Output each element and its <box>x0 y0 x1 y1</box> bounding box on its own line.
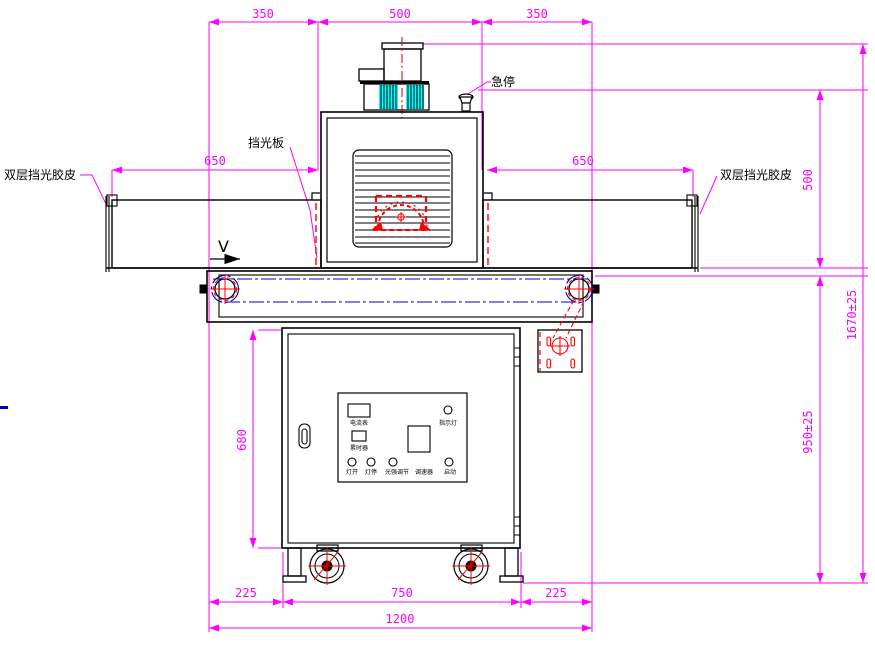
dim-bottom-center: 750 <box>391 586 413 600</box>
label-start: 启动 <box>444 468 456 476</box>
emergency-stop-button <box>459 94 473 111</box>
ammeter-display <box>348 404 370 417</box>
legs-and-casters <box>283 545 523 585</box>
label-lamp-on: 灯开 <box>346 468 358 476</box>
leveling-leg-right <box>505 548 518 576</box>
start-button <box>445 458 453 466</box>
leveling-leg-left <box>288 548 301 576</box>
oven-grille-louvers <box>355 156 450 243</box>
cabinet-door <box>288 334 514 543</box>
lamp-off-button <box>367 458 375 466</box>
oven-housing <box>321 112 483 268</box>
motor-side-box <box>359 69 384 81</box>
dim-bottom-right: 225 <box>545 586 567 600</box>
dim-bottom-left: 225 <box>235 586 257 600</box>
label-lamp-off: 灯停 <box>365 468 377 476</box>
tunnel-right <box>483 200 692 268</box>
tunnel-left <box>112 200 321 268</box>
motor-mount-bracket <box>538 300 584 372</box>
label-intensity-adjust: 光强调节 <box>385 468 409 476</box>
dim-total-height: 1670±25 <box>845 290 859 341</box>
indicator-lamp <box>444 406 452 414</box>
label-hour-meter: 累时器 <box>350 444 368 452</box>
label-light-shield-plate: 挡光板 <box>248 136 284 150</box>
caster-left <box>308 545 346 585</box>
dim-cabinet-height: 680 <box>235 429 249 451</box>
dim-top-right: 350 <box>526 7 548 21</box>
door-handle <box>299 424 310 448</box>
shield-bracket-left <box>312 193 320 200</box>
leveling-pad-right <box>500 576 523 582</box>
hour-meter-display <box>352 431 366 441</box>
dimension-lines <box>112 22 863 628</box>
label-belt-direction: V <box>218 237 229 256</box>
fan-motor-assembly <box>359 37 429 118</box>
shield-bracket-right <box>484 193 492 200</box>
roller-shaft-left <box>200 285 207 293</box>
dimension-extension-lines <box>112 22 868 632</box>
label-ammeter: 电流表 <box>350 419 368 427</box>
dim-tunnel-right: 650 <box>572 154 594 168</box>
label-emergency-stop: 急停 <box>491 74 515 89</box>
technical-drawing-canvas: 350 500 350 650 650 500 1670±25 950±25 6… <box>0 0 875 650</box>
leveling-pad-left <box>283 576 306 582</box>
dim-total-width: 1200 <box>386 612 415 626</box>
label-speed-controller: 调速器 <box>415 468 433 476</box>
dim-tunnel-left: 650 <box>204 154 226 168</box>
control-panel: 电流表 累时器 指示灯 灯开 灯停 光强调节 调速器 启动 <box>338 393 467 482</box>
label-double-rubber-right: 双层挡光胶皮 <box>720 167 792 182</box>
speed-controller-unit <box>408 426 430 452</box>
lamp-on-button <box>348 458 356 466</box>
door-hinges <box>514 348 520 535</box>
left-edge-blue-mark <box>0 406 8 409</box>
belt-centerlines-blue <box>212 276 593 303</box>
uv-lamp-reflector <box>371 196 431 230</box>
light-shield-plates-red <box>316 203 488 267</box>
intensity-adjust-knob <box>389 458 397 466</box>
control-cabinet <box>282 328 520 548</box>
uv-machine-drawing: 350 500 350 650 650 500 1670±25 950±25 6… <box>0 0 875 650</box>
fan-base-plate <box>360 81 429 84</box>
caster-right <box>452 545 490 585</box>
label-double-rubber-left: 双层挡光胶皮 <box>4 167 76 182</box>
dim-oven-height: 500 <box>801 169 815 191</box>
oven-grille-frame <box>353 150 452 247</box>
dim-belt-height: 950±25 <box>801 410 815 453</box>
label-indicator-lamp: 指示灯 <box>439 419 457 427</box>
dim-top-left: 350 <box>252 7 274 21</box>
dim-top-center: 500 <box>389 7 411 21</box>
